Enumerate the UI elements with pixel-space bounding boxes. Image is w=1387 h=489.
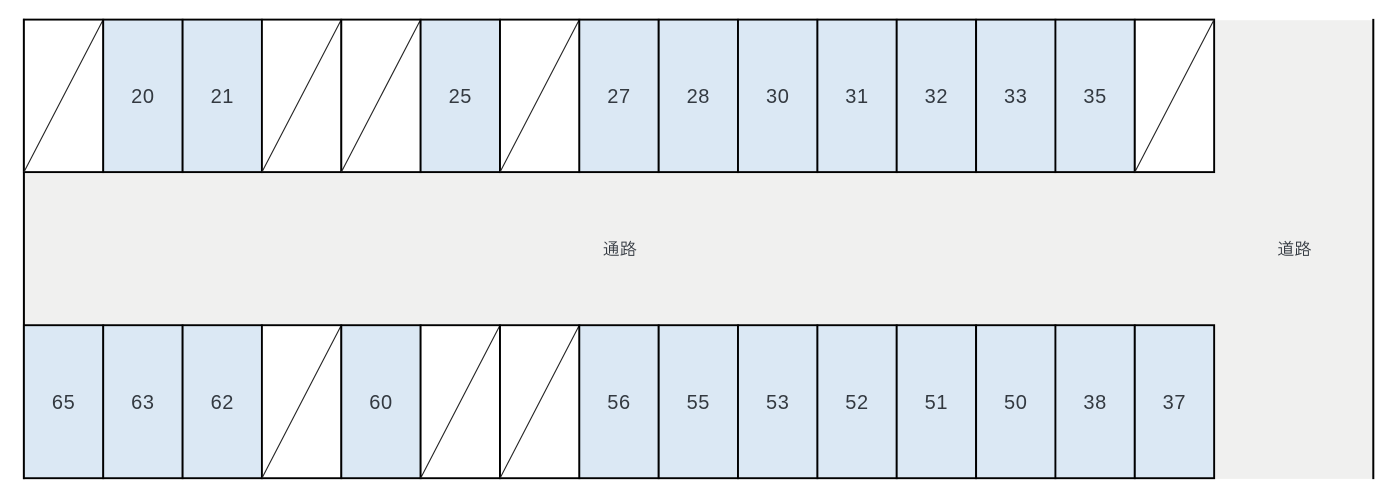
svg-text:55: 55 <box>687 392 710 414</box>
svg-text:65: 65 <box>52 392 75 414</box>
svg-text:20: 20 <box>131 86 154 108</box>
svg-text:51: 51 <box>925 392 948 414</box>
svg-text:27: 27 <box>607 86 630 108</box>
svg-text:56: 56 <box>607 392 630 414</box>
svg-text:25: 25 <box>449 86 472 108</box>
svg-text:31: 31 <box>845 86 868 108</box>
svg-text:62: 62 <box>211 392 234 414</box>
svg-text:50: 50 <box>1004 392 1027 414</box>
svg-text:33: 33 <box>1004 86 1027 108</box>
svg-text:21: 21 <box>211 86 234 108</box>
svg-text:38: 38 <box>1083 392 1106 414</box>
svg-text:63: 63 <box>131 392 154 414</box>
svg-text:32: 32 <box>925 86 948 108</box>
svg-text:52: 52 <box>845 392 868 414</box>
svg-text:35: 35 <box>1083 86 1106 108</box>
svg-text:37: 37 <box>1163 392 1186 414</box>
svg-text:30: 30 <box>766 86 789 108</box>
svg-text:60: 60 <box>369 392 392 414</box>
svg-text:53: 53 <box>766 392 789 414</box>
svg-text:28: 28 <box>687 86 710 108</box>
